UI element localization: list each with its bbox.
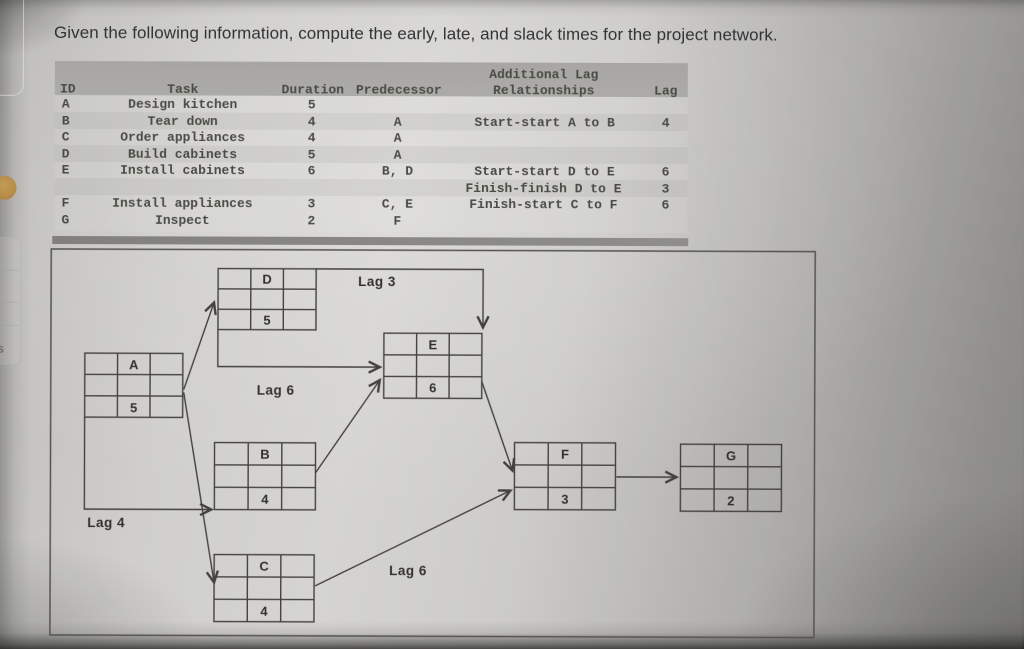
svg-text:5: 5 (263, 313, 270, 328)
svg-text:Lag 6: Lag 6 (389, 563, 427, 578)
svg-text:5: 5 (130, 400, 137, 415)
svg-text:B: B (260, 447, 269, 462)
svg-text:6: 6 (429, 380, 436, 395)
svg-text:D: D (262, 272, 271, 287)
svg-text:3: 3 (561, 492, 568, 507)
svg-text:Lag 4: Lag 4 (87, 515, 125, 530)
svg-text:2: 2 (727, 493, 734, 508)
svg-text:A: A (129, 357, 139, 372)
svg-text:F: F (561, 447, 569, 462)
svg-text:Lag 6: Lag 6 (257, 383, 295, 398)
svg-text:Lag 3: Lag 3 (358, 274, 396, 289)
svg-text:4: 4 (260, 604, 268, 619)
svg-text:G: G (726, 448, 736, 463)
svg-text:C: C (259, 559, 269, 574)
svg-text:E: E (429, 337, 438, 352)
svg-text:4: 4 (261, 492, 269, 507)
